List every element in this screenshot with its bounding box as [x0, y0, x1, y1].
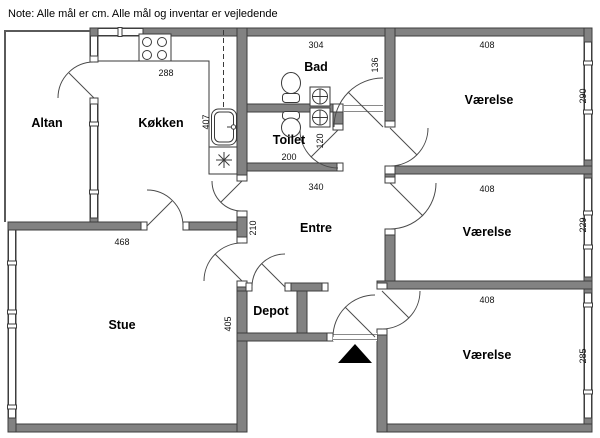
vaerelse-mid-door-leaf: [390, 183, 423, 216]
room-label-vaerelse-mid: Værelse: [463, 225, 512, 239]
measure-vaerelse-bot-width: 408: [479, 295, 494, 305]
door-jamb: [385, 166, 395, 174]
sink-bad-icon: [310, 87, 330, 106]
measure-entre-width: 340: [308, 182, 323, 192]
door-jamb: [322, 283, 328, 291]
depot-door-leaf: [262, 264, 285, 287]
sink-toilet-icon: [310, 108, 330, 127]
door-jamb: [237, 175, 247, 181]
window-tick: [90, 190, 99, 194]
floor-plan-page: Note: Alle mål er cm. Alle mål og invent…: [0, 0, 600, 438]
entrance-arrow-icon: [338, 344, 372, 363]
measure-stue-width: 468: [114, 237, 129, 247]
wall-bottom-left: [8, 424, 247, 432]
window-tick: [584, 211, 593, 215]
measure-vaerelse-bot-depth: 285: [578, 348, 588, 363]
door-jamb: [237, 237, 247, 243]
wall-rooms-west-a: [385, 28, 395, 127]
door-jamb: [183, 222, 189, 230]
measure-bad-width: 304: [308, 40, 323, 50]
room-label-entre: Entre: [300, 221, 332, 235]
door-jamb: [337, 163, 343, 171]
door-jamb: [90, 98, 98, 104]
room-label-vaerelse-top: Værelse: [465, 93, 514, 107]
window-tick: [584, 61, 593, 65]
kitchen-sink-icon: [212, 109, 237, 145]
balcony-door-opening: [90, 62, 99, 98]
door-jamb: [237, 211, 247, 217]
window-tick: [8, 405, 17, 409]
bad-door-leaf: [348, 92, 383, 127]
room-label-vaerelse-bot: Værelse: [463, 348, 512, 362]
kitchen-door-leaf: [221, 181, 242, 202]
room-label-altan: Altan: [31, 116, 62, 130]
wall-bottom-right: [377, 424, 592, 432]
window-tick: [584, 110, 593, 114]
measure-kokken-depth: 407: [201, 114, 211, 129]
door-jamb: [385, 121, 395, 127]
wall-entrance-nook-east: [377, 329, 387, 432]
window-tick: [8, 261, 17, 265]
fixtures: [98, 30, 372, 363]
wall-entre-bottom: [237, 333, 333, 341]
measure-vaerelse-top-width: 408: [479, 40, 494, 50]
door-jamb: [385, 229, 395, 235]
window-tick: [8, 324, 17, 328]
measure-stue-depth: 405: [223, 316, 233, 331]
wall-depot-east: [297, 291, 307, 333]
floor-drain-icon: [216, 152, 232, 168]
room-label-depot: Depot: [253, 304, 289, 318]
wc-bad-icon: [282, 73, 301, 103]
wall-divider-2: [377, 281, 592, 289]
wall-spine-a: [237, 28, 247, 181]
door-jamb: [385, 177, 395, 183]
window-tick: [584, 245, 593, 249]
window-tick: [90, 122, 99, 126]
door-jamb: [285, 283, 291, 291]
measure-entre-side: 210: [248, 220, 258, 235]
wall-divider-1: [385, 166, 592, 174]
front-door-leaf: [345, 307, 375, 337]
wall-spine-c: [237, 281, 247, 432]
door-jamb: [141, 222, 147, 230]
room-label-kokken: Køkken: [138, 116, 183, 130]
window-tick: [118, 28, 122, 37]
window-tick: [8, 310, 17, 314]
door-jamb: [90, 56, 98, 62]
room-label-toilet: Toilet: [273, 133, 306, 147]
floor-plan: Note: Alle mål er cm. Alle mål og invent…: [0, 0, 600, 438]
window-tick: [584, 390, 593, 394]
room-label-stue: Stue: [108, 318, 135, 332]
door-jamb: [377, 329, 387, 335]
measure-vaerelse-top-depth: 290: [578, 88, 588, 103]
measure-vaerelse-mid-width: 408: [479, 184, 494, 194]
wall-stue-top-a: [8, 222, 147, 230]
window-kitchen-b: [91, 100, 98, 218]
vaerelse-bot-door-leaf: [382, 291, 409, 318]
measure-vaerelse-mid-depth: 229: [578, 217, 588, 232]
door-jamb: [246, 283, 252, 291]
stue-top-door-leaf: [147, 201, 172, 226]
window-tick: [584, 303, 593, 307]
door-jamb: [327, 333, 333, 341]
measure-toilet-side: 120: [315, 133, 325, 148]
measure-bad-side: 136: [370, 57, 380, 72]
stue-east-door-leaf: [215, 254, 242, 281]
measure-toilet-width: 200: [281, 152, 296, 162]
wall-rooms-west-c: [385, 229, 395, 289]
note: Note: Alle mål er cm. Alle mål og invent…: [8, 8, 278, 20]
vaerelse-top-door-leaf: [390, 128, 417, 155]
measure-kokken-width: 288: [158, 68, 173, 78]
stove-icon: [139, 34, 171, 61]
door-jamb: [377, 283, 387, 289]
room-label-bad: Bad: [304, 60, 328, 74]
